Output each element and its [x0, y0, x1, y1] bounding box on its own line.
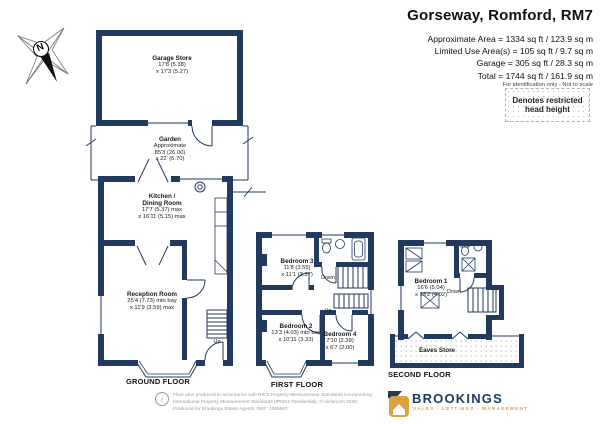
disclaimer-line-3: Produced for Brookings Estate Agents. RE…	[173, 407, 381, 414]
ground-floor-label: GROUND FLOOR	[108, 377, 208, 386]
info-icon: i	[155, 392, 169, 406]
room-label-eaves-store: Eaves Store	[392, 347, 482, 354]
stairs-down-label-first: Down	[316, 275, 340, 281]
disclaimer-line-1: Floor plan produced in accordance with R…	[173, 393, 381, 400]
compass-rose-icon	[18, 28, 68, 84]
area-line-total: Total = 1744 sq ft / 161.9 sq m	[427, 70, 593, 82]
floorplan-page: Gorseway, Romford, RM7 Approximate Area …	[0, 0, 600, 424]
area-line-approximate: Approximate Area = 1334 sq ft / 123.9 sq…	[427, 33, 593, 45]
disclaimer-line-2: International Property Measurement Stand…	[173, 400, 381, 407]
first-floor-plan	[256, 232, 374, 377]
brookings-brand-name: BROOKINGS	[412, 391, 503, 406]
area-summary: Approximate Area = 1334 sq ft / 123.9 sq…	[427, 33, 593, 82]
stairs-up-label-first: Up	[318, 308, 338, 314]
brookings-brand-tagline: SALES · LETTINGS · MANAGEMENT	[413, 407, 528, 412]
room-label-garage-store: Garage Store 17'8 (5.38) x 17'3 (5.27)	[122, 55, 222, 75]
first-floor-label: FIRST FLOOR	[247, 380, 347, 389]
stairs-down-label-second: Down	[442, 289, 466, 295]
restricted-head-height-legend: Denotes restricted head height	[505, 88, 590, 122]
page-title: Gorseway, Romford, RM7	[407, 7, 593, 24]
brookings-logo-icon	[388, 391, 409, 417]
area-line-garage: Garage = 305 sq ft / 28.3 sq m	[427, 57, 593, 69]
stairs-up-label-ground: Up	[207, 339, 227, 345]
area-line-limited-use: Limited Use Area(s) = 105 sq ft / 9.7 sq…	[427, 45, 593, 57]
room-label-kitchen-dining: Kitchen / Dining Room 17'7 (5.37) max x …	[112, 193, 212, 221]
disclaimer: Floor plan produced in accordance with R…	[173, 393, 381, 413]
room-label-reception: Reception Room 25'4 (7.73) into bay x 11…	[102, 291, 202, 311]
legend-text: Denotes restricted head height	[508, 96, 587, 114]
second-floor-label: SECOND FLOOR	[388, 370, 498, 379]
room-label-bedroom4: Bedroom 4 7'10 (2.39) x 6'7 (2.00)	[310, 331, 370, 351]
room-label-garden: Garden Approximate 85'3 (26.00) x 22' (6…	[120, 136, 220, 163]
